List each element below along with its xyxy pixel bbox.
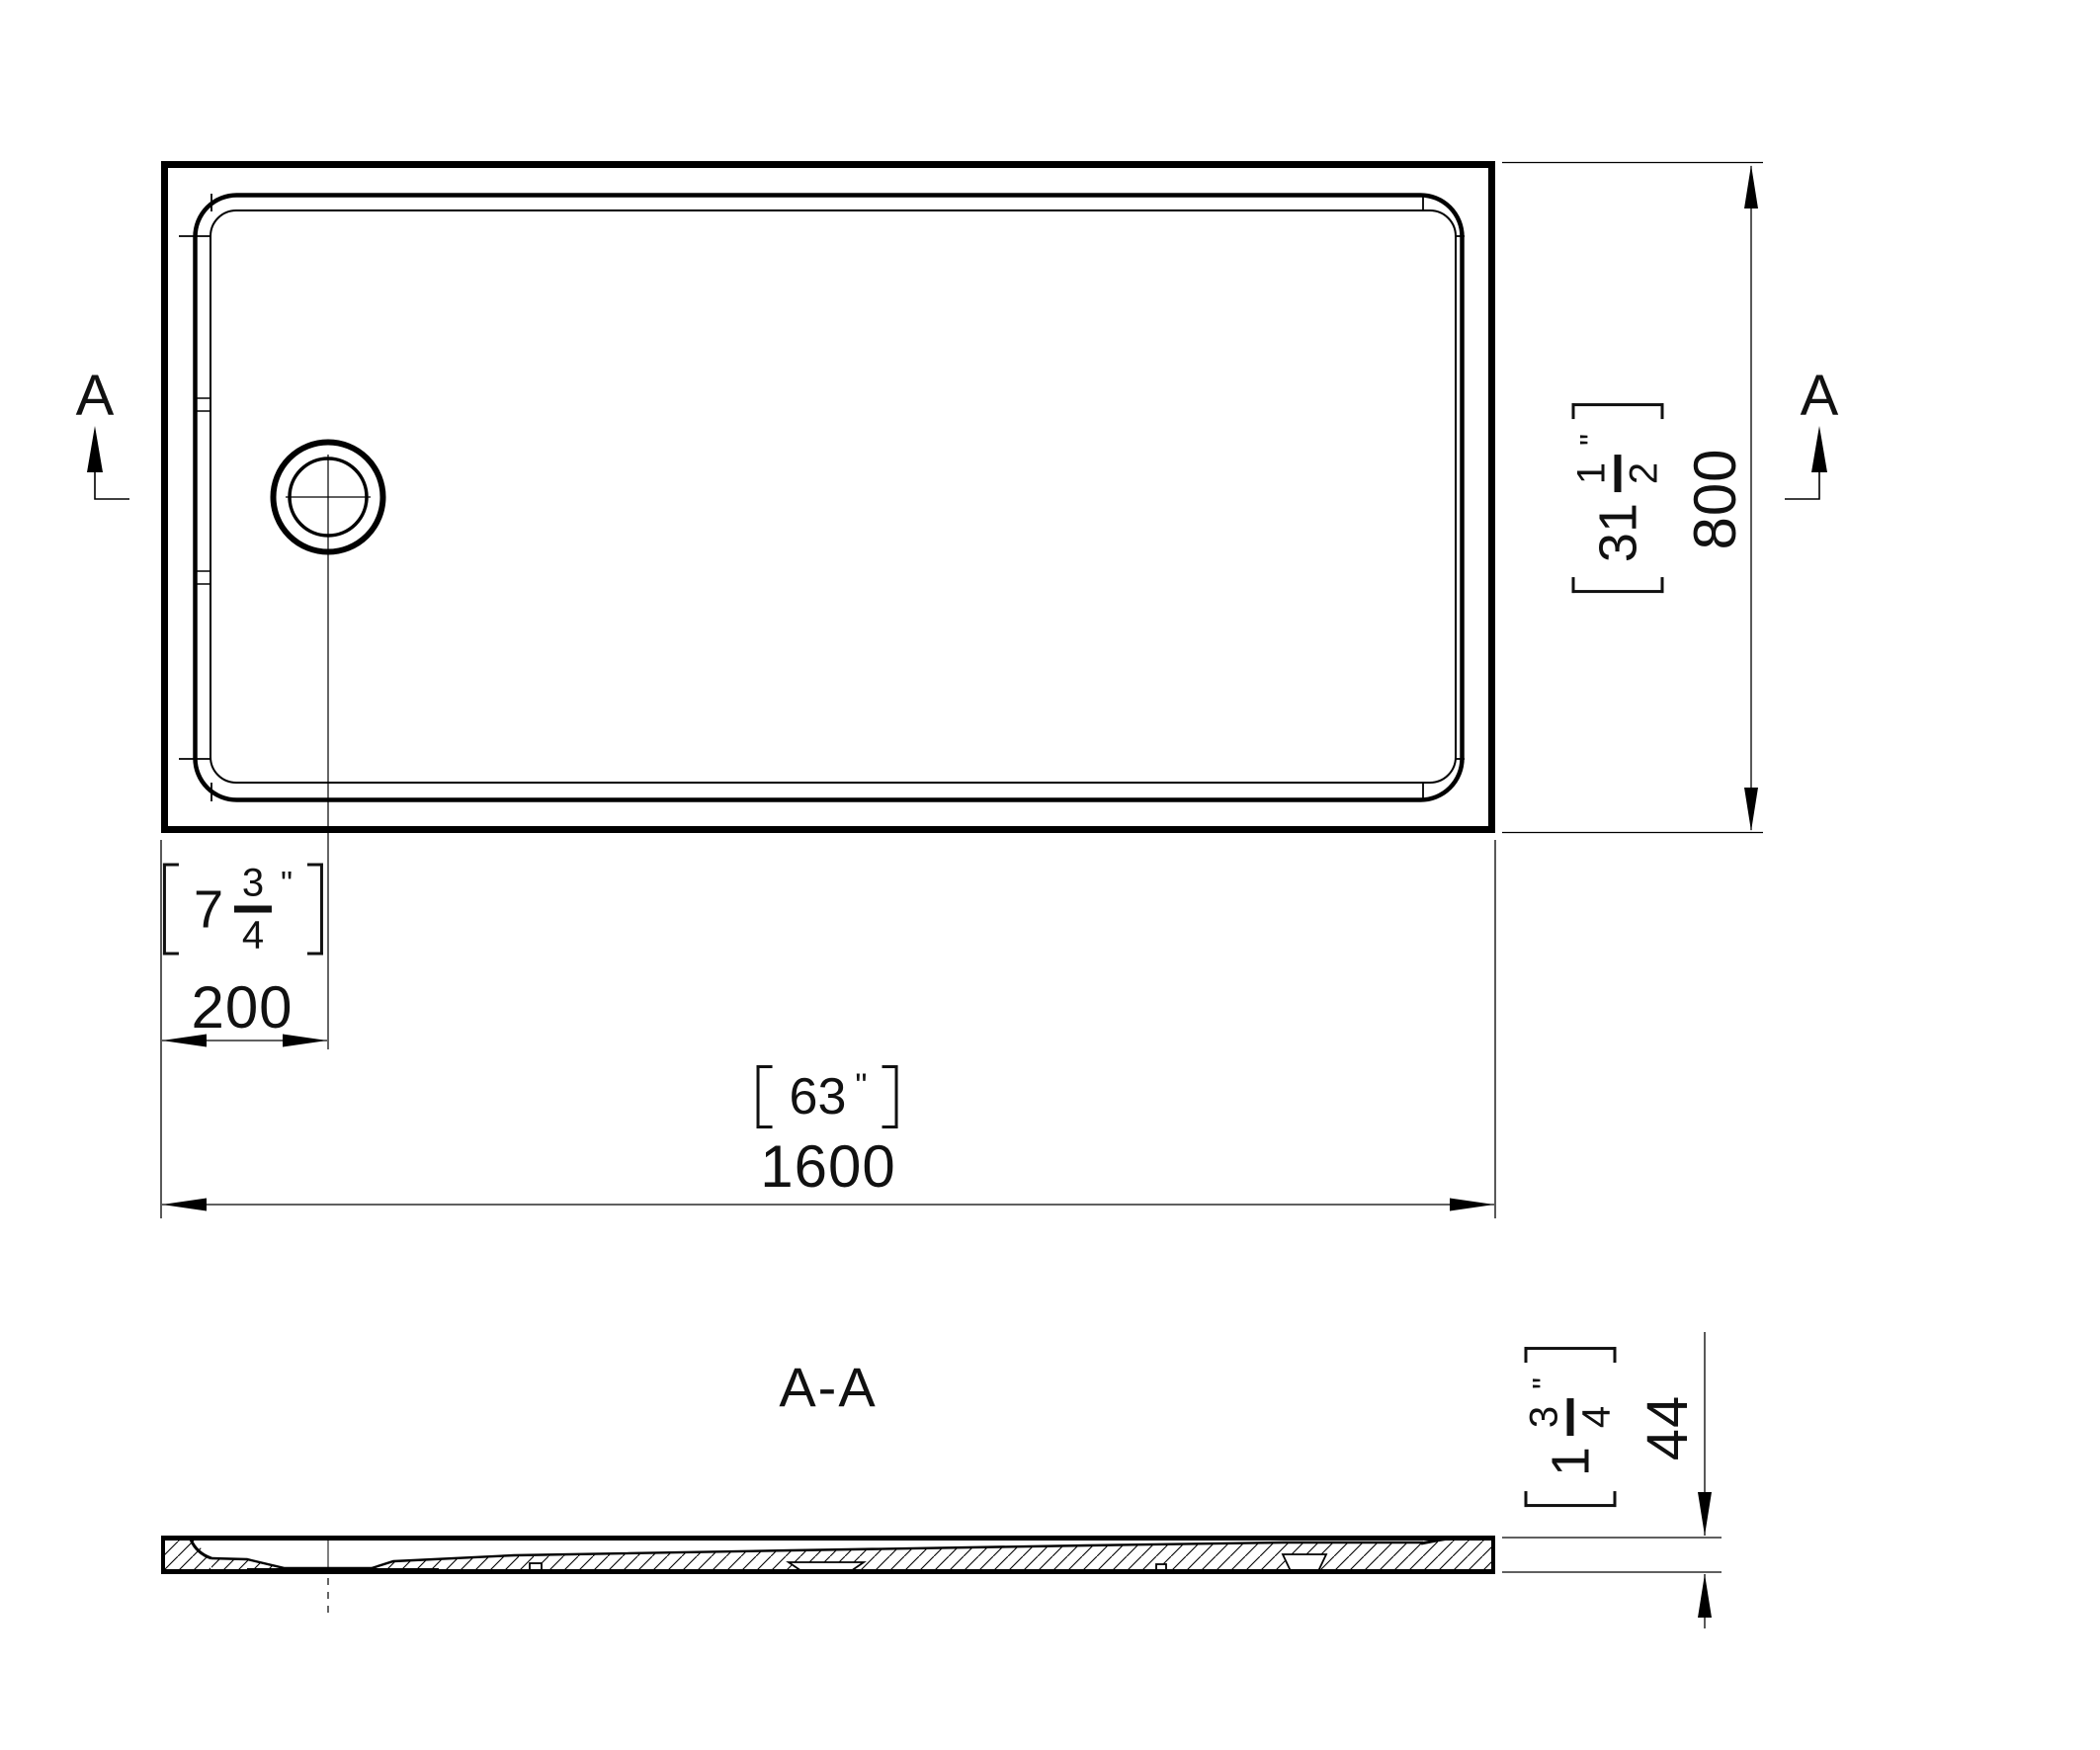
dim-arrow-down-icon <box>1698 1492 1712 1536</box>
inch-mark: " <box>1576 428 1610 446</box>
bracket-right <box>307 864 323 956</box>
section-arrow-up-icon <box>1811 426 1827 472</box>
dim-thickness-inches-group: 1 3 4 " <box>1517 1347 1625 1507</box>
fraction-denominator: 4 <box>1577 1406 1617 1428</box>
top-view <box>87 163 1827 1219</box>
fraction-denominator: 4 <box>242 916 264 956</box>
dim-length-in: 63 <box>782 1065 847 1128</box>
fraction: 3 4 <box>234 864 272 956</box>
inch-mark: " <box>1529 1372 1562 1389</box>
fraction: 1 2 <box>1572 455 1664 492</box>
bracket-right <box>1525 1347 1617 1363</box>
dim-arrow-right-icon <box>1450 1199 1494 1211</box>
shower-tray-technical-drawing: A A 31 1 2 " 800 7 3 4 " <box>0 0 2100 1750</box>
right-hatch-wedge <box>1423 1539 1492 1570</box>
fraction-numerator: 1 <box>1572 462 1612 484</box>
section-cut-marker-right <box>1785 426 1827 499</box>
dim-thickness-in-whole: 1 <box>1544 1445 1597 1482</box>
fraction-bar <box>234 906 272 913</box>
dim-offset-inches-group: 7 3 4 " <box>163 856 323 963</box>
corner-ticks <box>179 194 1465 801</box>
dim-arrow-up-icon <box>1698 1574 1712 1618</box>
floor-rect <box>210 210 1456 783</box>
dim-offset-in-whole: 7 <box>188 882 225 936</box>
dim-width-in-whole: 31 <box>1591 501 1644 568</box>
dim-arrow-down-icon <box>1744 788 1758 831</box>
fraction-bar <box>1567 1398 1574 1436</box>
dim-width-mm: 800 <box>1686 448 1745 549</box>
dim-arrow-up-icon <box>1744 165 1758 208</box>
inch-mark: " <box>281 868 298 901</box>
fraction-denominator: 2 <box>1625 462 1664 484</box>
inch-mark: " <box>855 1069 873 1103</box>
fraction-numerator: 3 <box>242 864 264 903</box>
fraction-bar <box>1615 455 1622 492</box>
section-cut-marker-left <box>87 426 129 499</box>
dim-arrow-left-icon <box>162 1199 207 1211</box>
bracket-left <box>163 864 179 956</box>
section-marker-letter-right: A <box>1801 368 1839 425</box>
section-view <box>161 1332 1722 1628</box>
fraction: 3 4 <box>1525 1398 1617 1436</box>
bracket-left <box>1525 1491 1617 1507</box>
dim-length-inches-group: 63 " <box>757 1057 898 1136</box>
fraction-numerator: 3 <box>1525 1406 1564 1428</box>
section-arrow-up-icon <box>87 426 103 472</box>
dim-offset-mm: 200 <box>191 978 293 1038</box>
bracket-right <box>882 1065 897 1128</box>
bracket-left <box>1572 577 1664 593</box>
bracket-right <box>1572 403 1664 419</box>
dim-width-inches-group: 31 1 2 " <box>1564 403 1672 593</box>
dim-thickness-mm: 44 <box>1639 1395 1697 1461</box>
section-view-label: A-A <box>779 1360 877 1415</box>
dim-length-mm: 1600 <box>760 1137 895 1197</box>
bracket-left <box>757 1065 773 1128</box>
section-marker-letter-left: A <box>76 368 115 425</box>
